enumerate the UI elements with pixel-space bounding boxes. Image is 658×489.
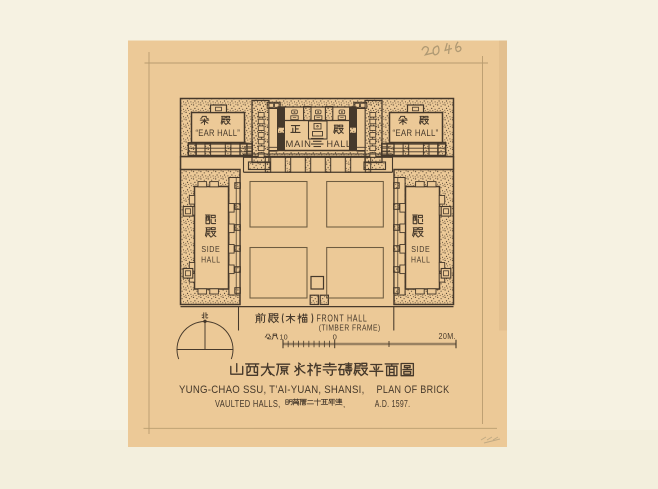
svg-text:PLAN OF BRICK: PLAN OF BRICK — [377, 384, 450, 396]
svg-text:HALL: HALL — [201, 255, 221, 264]
svg-text:0: 0 — [333, 332, 337, 341]
svg-text:A.D. 1597.: A.D. 1597. — [375, 399, 411, 410]
svg-text:(TIMBER FRAME): (TIMBER FRAME) — [319, 323, 381, 332]
svg-text:VAULTED HALLS,: VAULTED HALLS, — [215, 399, 281, 410]
svg-text:10: 10 — [280, 333, 289, 342]
svg-text:20M.: 20M. — [439, 332, 457, 341]
svg-text:,: , — [343, 400, 345, 409]
svg-text:SIDE: SIDE — [411, 245, 430, 254]
svg-text:MAIN: MAIN — [286, 138, 312, 149]
svg-text:“EAR HALL”: “EAR HALL” — [393, 128, 439, 138]
svg-text:HALL: HALL — [411, 255, 431, 264]
svg-text:HALL: HALL — [327, 138, 352, 149]
svg-text:SIDE: SIDE — [201, 245, 220, 254]
svg-text:“EAR HALL”: “EAR HALL” — [196, 128, 241, 138]
svg-text:YUNG-CHAO SSU, T’AI-YUAN, SHAN: YUNG-CHAO SSU, T’AI-YUAN, SHANSI, — [179, 384, 365, 396]
